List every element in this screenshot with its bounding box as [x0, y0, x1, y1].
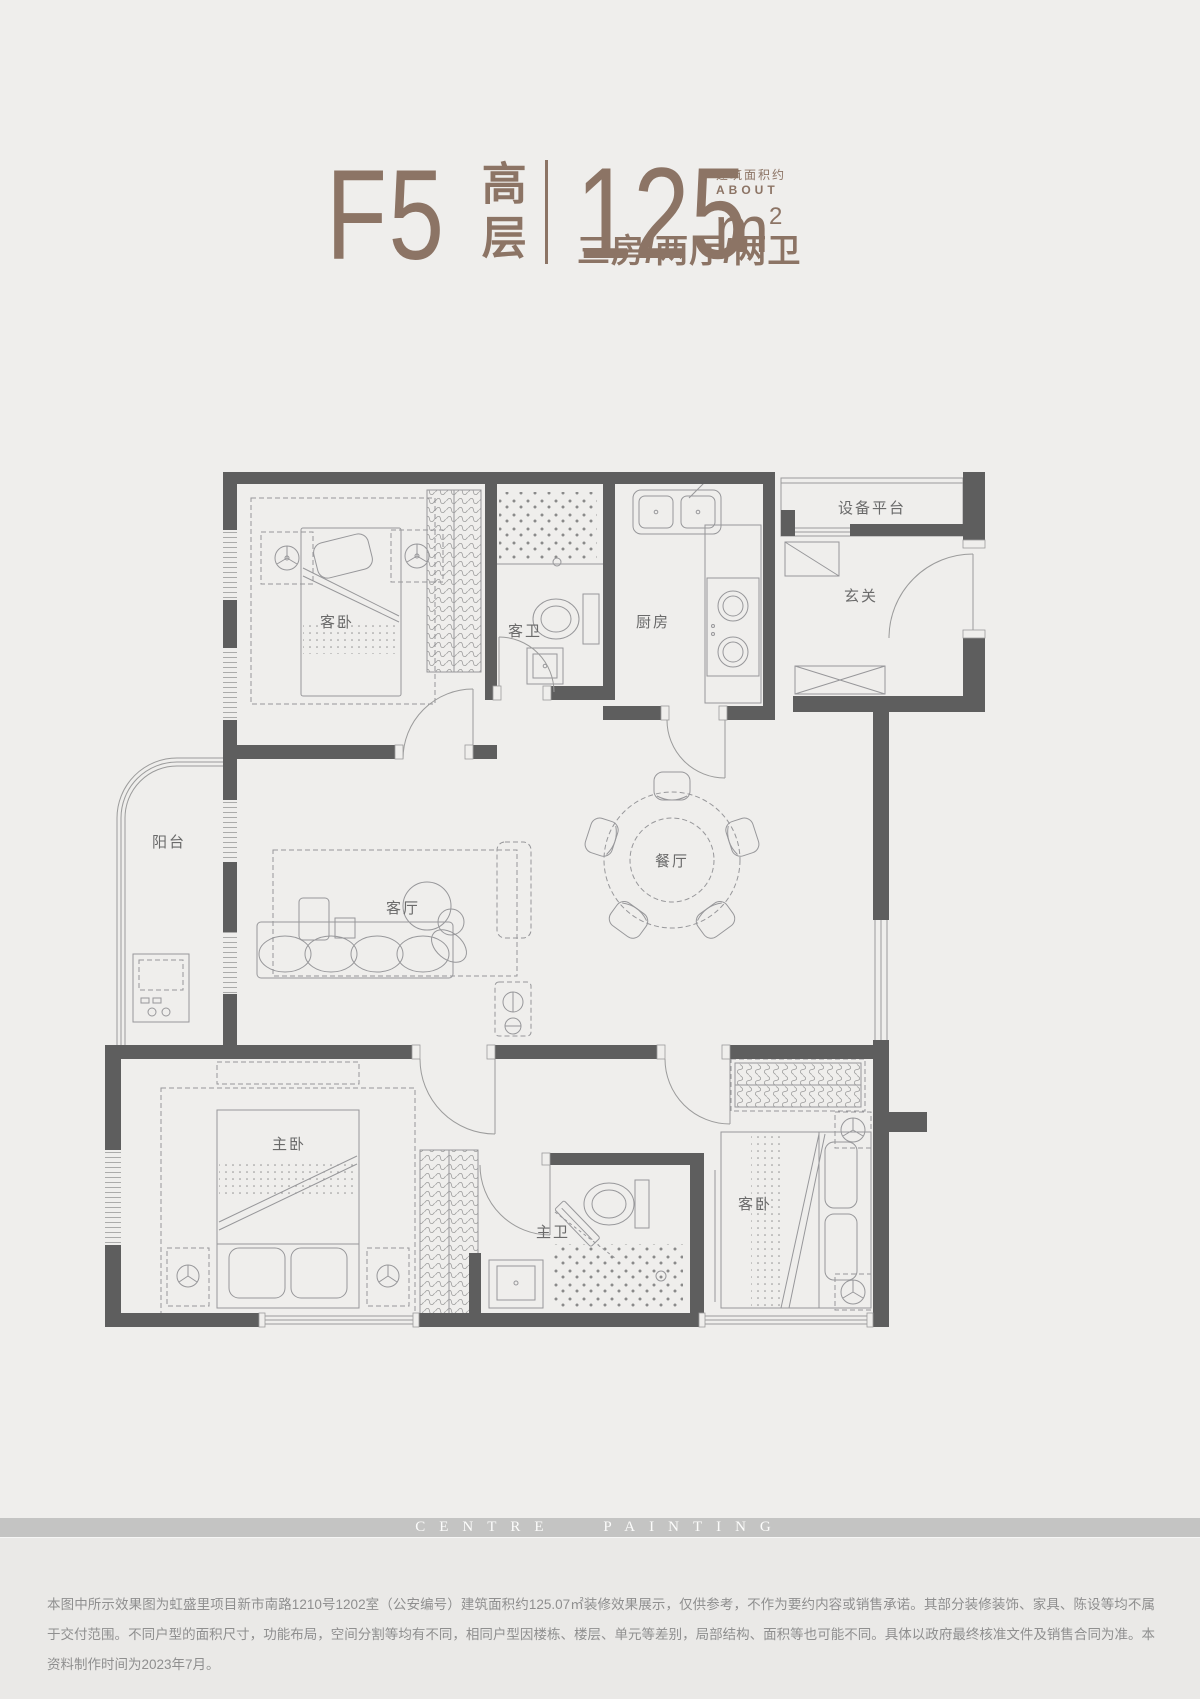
room-label-foyer: 玄关	[844, 588, 878, 605]
fridge-diagonal	[785, 542, 839, 576]
toilet-tank	[635, 1180, 649, 1228]
plan-header: F5 高层 125 建筑面积约 ABOUT m2 三房/两厅/两卫	[0, 0, 1200, 320]
wall-bath2-top	[550, 1153, 702, 1165]
watermark-text: CENTRE PAINTING	[415, 1519, 785, 1536]
bed-top	[301, 528, 401, 696]
wall-dining-right	[873, 712, 889, 920]
master-zone	[161, 1088, 415, 1316]
wall-master-top	[105, 1045, 420, 1059]
pillow	[825, 1214, 857, 1280]
blanket-fold	[303, 568, 399, 616]
room-label-living-room: 客厅	[386, 900, 420, 917]
layout-description: 三房/两厅/两卫	[577, 224, 801, 272]
bedroom1-door-arc	[403, 689, 473, 759]
master-dresser	[217, 1062, 359, 1084]
sofa-cushion	[259, 936, 311, 972]
shower-area	[551, 1244, 683, 1310]
pillow	[291, 1248, 347, 1298]
ceiling-fan-icon	[377, 1265, 399, 1287]
stove	[707, 578, 759, 676]
wall-pillar	[889, 1112, 927, 1132]
toilet-bowl	[592, 1190, 626, 1218]
master-door-arc	[420, 1059, 495, 1134]
vanity-basin	[533, 654, 557, 678]
wall-bath2-right	[690, 1153, 704, 1315]
sofa-pillow	[425, 923, 472, 969]
room-label-bedroom-top: 客卧	[320, 614, 354, 631]
wall-foyer-bottom	[793, 696, 985, 712]
sink-basin-left	[639, 496, 673, 528]
room-label-balcony: 阳台	[152, 834, 186, 851]
pillow	[229, 1248, 285, 1298]
ceiling-fan-icon	[841, 1280, 865, 1304]
blanket-band	[219, 1164, 357, 1198]
floor-plan: 客卧 客卫 厨房 设备平台 玄关 阳台 客厅 餐厅 主卧 主卫 客卧	[105, 470, 995, 1330]
wall-bedroom2-top	[730, 1045, 873, 1059]
nightstand	[367, 1248, 409, 1306]
wall-bath2-left	[469, 1253, 481, 1315]
footer-section: 本图中所示效果图为虹盛里项目新市南路1210号1202室（公安编号）建筑面积约1…	[0, 1537, 1200, 1699]
wall-bedroom1-bottom	[237, 745, 403, 759]
wall-corridor	[495, 1045, 665, 1059]
area-note-cn: 建筑面积约	[716, 168, 786, 183]
room-label-guest-bath: 客卫	[508, 623, 542, 640]
ceiling-fan-icon	[177, 1265, 199, 1287]
plan-type-highrise: 高层	[472, 160, 528, 268]
wall-platform-right	[963, 472, 985, 546]
wall-platform-bottom	[850, 524, 963, 536]
wall-kitchen-foyer	[763, 484, 775, 720]
wall-foyer-right	[963, 638, 985, 700]
washing-machine	[133, 954, 189, 1022]
guest-bed	[721, 1132, 871, 1308]
plan-code: F5	[326, 152, 446, 280]
ceiling-fan-icon	[841, 1118, 865, 1142]
ceiling-fan-icon	[405, 544, 429, 568]
glazing-layer	[117, 478, 963, 1045]
pillow	[311, 532, 374, 580]
room-label-master-bath: 主卫	[536, 1224, 570, 1241]
room-label-equipment-platform: 设备平台	[838, 500, 906, 517]
vanity-basin	[497, 1266, 535, 1300]
side-table	[335, 918, 355, 938]
wall-kitchen-bottom-left	[603, 706, 667, 720]
ceiling-fan-icon	[275, 546, 299, 570]
room-label-master-bedroom: 主卧	[272, 1136, 306, 1153]
wall-bedroom2-right	[873, 1115, 889, 1327]
room-label-bedroom-bottom: 客卧	[738, 1196, 772, 1213]
vanity-sink	[527, 648, 563, 684]
bedroom2-door-arc	[665, 1059, 730, 1124]
tv-cabinet	[497, 842, 531, 938]
shower-area	[499, 492, 597, 560]
coffee-table	[299, 898, 329, 940]
sofa-cushion	[397, 936, 449, 972]
toilet-bowl	[541, 606, 571, 632]
nightstand	[167, 1248, 209, 1306]
sofa-cushion	[305, 936, 357, 972]
brochure-page: F5 高层 125 建筑面积约 ABOUT m2 三房/两厅/两卫	[0, 0, 1200, 1699]
wall-bedroom1-bath	[485, 484, 497, 686]
kitchen-door-arc	[667, 720, 725, 778]
sofa-cushion	[351, 936, 403, 972]
room-label-dining-room: 餐厅	[655, 853, 689, 870]
header-divider	[545, 160, 548, 264]
floor-plan-container: 客卧 客卫 厨房 设备平台 玄关 阳台 客厅 餐厅 主卧 主卫 客卧	[105, 470, 995, 1330]
entrance-door-arc	[889, 554, 973, 638]
disclaimer-text: 本图中所示效果图为虹盛里项目新市南路1210号1202室（公安编号）建筑面积约1…	[47, 1590, 1155, 1680]
kitchen-sink	[633, 490, 721, 534]
sink-basin-right	[681, 496, 715, 528]
bedroom-top-zone	[251, 498, 435, 704]
pillow	[825, 1142, 857, 1208]
blanket-band	[751, 1132, 781, 1308]
wall-top	[223, 472, 775, 484]
room-label-kitchen: 厨房	[636, 614, 670, 631]
room-labels: 客卧 客卫 厨房 设备平台 玄关 阳台 客厅 餐厅 主卧 主卫 客卧	[152, 500, 906, 1241]
toilet-tank	[583, 594, 599, 644]
wall-bath-kitchen	[603, 484, 615, 700]
drain-dot	[543, 664, 547, 668]
watermark-band: CENTRE PAINTING	[0, 1518, 1200, 1537]
